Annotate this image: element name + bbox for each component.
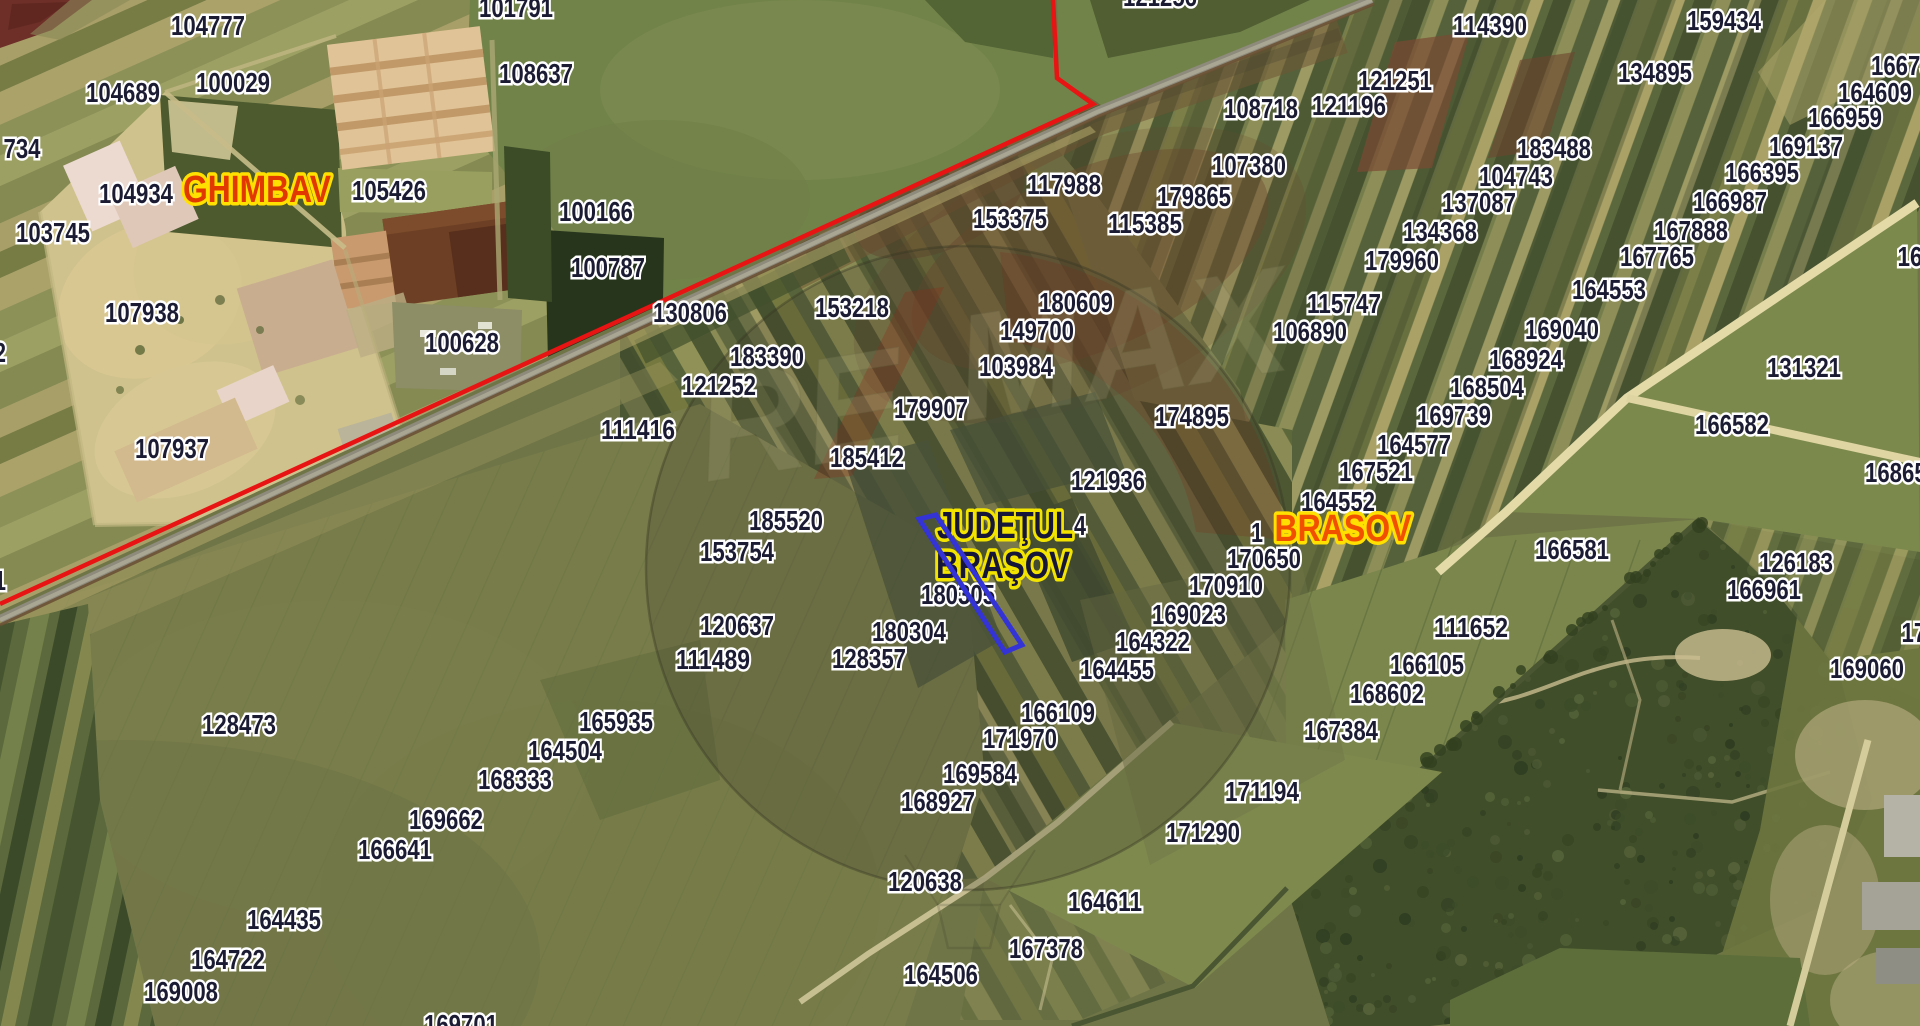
- svg-text:171970: 171970: [983, 723, 1057, 754]
- svg-text:171194: 171194: [1225, 776, 1299, 807]
- svg-text:734: 734: [4, 133, 41, 164]
- svg-text:2: 2: [0, 337, 6, 368]
- svg-text:170: 170: [1902, 617, 1920, 648]
- svg-text:164435: 164435: [247, 904, 321, 935]
- svg-text:166641: 166641: [358, 834, 432, 865]
- svg-text:168924: 168924: [1489, 344, 1563, 375]
- svg-text:100628: 100628: [425, 327, 499, 358]
- svg-text:169662: 169662: [409, 804, 483, 835]
- svg-text:120638: 120638: [888, 866, 962, 897]
- svg-text:JUDEŢUL: JUDEŢUL: [937, 505, 1073, 547]
- svg-text:104689: 104689: [86, 77, 160, 108]
- svg-text:108637: 108637: [499, 58, 573, 89]
- svg-text:BRASOV: BRASOV: [1275, 508, 1413, 550]
- svg-text:166987: 166987: [1693, 186, 1767, 217]
- svg-text:4: 4: [1074, 510, 1086, 541]
- svg-text:169584: 169584: [943, 758, 1017, 789]
- svg-text:166395: 166395: [1725, 157, 1799, 188]
- svg-text:128473: 128473: [202, 709, 276, 740]
- svg-text:169739: 169739: [1417, 400, 1491, 431]
- svg-text:168504: 168504: [1450, 372, 1524, 403]
- svg-text:164322: 164322: [1116, 626, 1190, 657]
- svg-text:105426: 105426: [352, 175, 426, 206]
- svg-text:185412: 185412: [830, 442, 904, 473]
- svg-text:179865: 179865: [1157, 181, 1231, 212]
- svg-text:115747: 115747: [1307, 288, 1381, 319]
- svg-text:164722: 164722: [191, 944, 265, 975]
- svg-text:111489: 111489: [676, 644, 750, 675]
- svg-text:185520: 185520: [749, 505, 823, 536]
- svg-text:166581: 166581: [1535, 534, 1609, 565]
- svg-text:164553: 164553: [1572, 274, 1646, 305]
- svg-text:170910: 170910: [1189, 570, 1263, 601]
- svg-text:121252: 121252: [682, 370, 756, 401]
- svg-text:149700: 149700: [1000, 315, 1074, 346]
- svg-text:153754: 153754: [700, 536, 774, 567]
- svg-text:100166: 100166: [559, 196, 633, 227]
- svg-text:168927: 168927: [901, 786, 975, 817]
- svg-text:174895: 174895: [1155, 401, 1229, 432]
- svg-text:104777: 104777: [171, 10, 245, 41]
- svg-text:100787: 100787: [571, 252, 645, 283]
- svg-text:104934: 104934: [99, 178, 173, 209]
- svg-text:168602: 168602: [1350, 678, 1424, 709]
- svg-text:107938: 107938: [105, 297, 179, 328]
- svg-text:134368: 134368: [1403, 216, 1477, 247]
- svg-text:100029: 100029: [196, 67, 270, 98]
- svg-text:115385: 115385: [1108, 208, 1182, 239]
- svg-text:166961: 166961: [1727, 574, 1801, 605]
- svg-text:130806: 130806: [653, 297, 727, 328]
- svg-text:159434: 159434: [1687, 5, 1761, 36]
- svg-text:164611: 164611: [1068, 886, 1142, 917]
- svg-text:165935: 165935: [579, 706, 653, 737]
- svg-text:134895: 134895: [1618, 57, 1692, 88]
- svg-text:164455: 164455: [1080, 654, 1154, 685]
- svg-text:167384: 167384: [1304, 715, 1378, 746]
- svg-text:166105: 166105: [1390, 649, 1464, 680]
- svg-text:168333: 168333: [478, 764, 552, 795]
- svg-text:180609: 180609: [1039, 287, 1113, 318]
- svg-text:117988: 117988: [1027, 169, 1101, 200]
- svg-text:164504: 164504: [528, 735, 602, 766]
- svg-text:166959: 166959: [1808, 102, 1882, 133]
- svg-text:121251: 121251: [1358, 65, 1432, 96]
- svg-text:153375: 153375: [973, 203, 1047, 234]
- svg-text:111652: 111652: [1434, 612, 1508, 643]
- svg-text:GHIMBAV: GHIMBAV: [183, 169, 332, 211]
- svg-text:169060: 169060: [1830, 653, 1904, 684]
- svg-text:103984: 103984: [979, 351, 1053, 382]
- svg-text:166757: 166757: [1871, 50, 1920, 81]
- svg-text:121256: 121256: [1123, 0, 1197, 12]
- svg-text:168659: 168659: [1865, 457, 1920, 488]
- svg-text:183390: 183390: [730, 341, 804, 372]
- svg-text:179907: 179907: [894, 393, 968, 424]
- svg-text:111416: 111416: [601, 414, 675, 445]
- svg-text:169008: 169008: [144, 976, 218, 1007]
- svg-text:169040: 169040: [1525, 314, 1599, 345]
- svg-text:121936: 121936: [1071, 465, 1145, 496]
- svg-text:108718: 108718: [1224, 93, 1298, 124]
- svg-text:179960: 179960: [1365, 245, 1439, 276]
- svg-text:164506: 164506: [904, 959, 978, 990]
- svg-text:167378: 167378: [1009, 933, 1083, 964]
- svg-text:171290: 171290: [1166, 817, 1240, 848]
- svg-text:169701: 169701: [424, 1009, 498, 1026]
- svg-text:137087: 137087: [1442, 187, 1516, 218]
- svg-text:107380: 107380: [1212, 150, 1286, 181]
- svg-text:103745: 103745: [16, 217, 90, 248]
- svg-text:166582: 166582: [1695, 409, 1769, 440]
- svg-text:101791: 101791: [479, 0, 553, 23]
- svg-text:183488: 183488: [1517, 133, 1591, 164]
- svg-text:1: 1: [1251, 517, 1263, 548]
- svg-text:107937: 107937: [135, 433, 209, 464]
- svg-text:153218: 153218: [815, 292, 889, 323]
- svg-text:131321: 131321: [1767, 352, 1841, 383]
- svg-text:114390: 114390: [1453, 10, 1527, 41]
- svg-text:167765: 167765: [1620, 241, 1694, 272]
- svg-text:106890: 106890: [1273, 316, 1347, 347]
- svg-text:120637: 120637: [700, 610, 774, 641]
- svg-text:128357: 128357: [832, 643, 906, 674]
- svg-text:1: 1: [0, 565, 6, 596]
- svg-text:16: 16: [1898, 241, 1920, 272]
- svg-text:167521: 167521: [1339, 456, 1413, 487]
